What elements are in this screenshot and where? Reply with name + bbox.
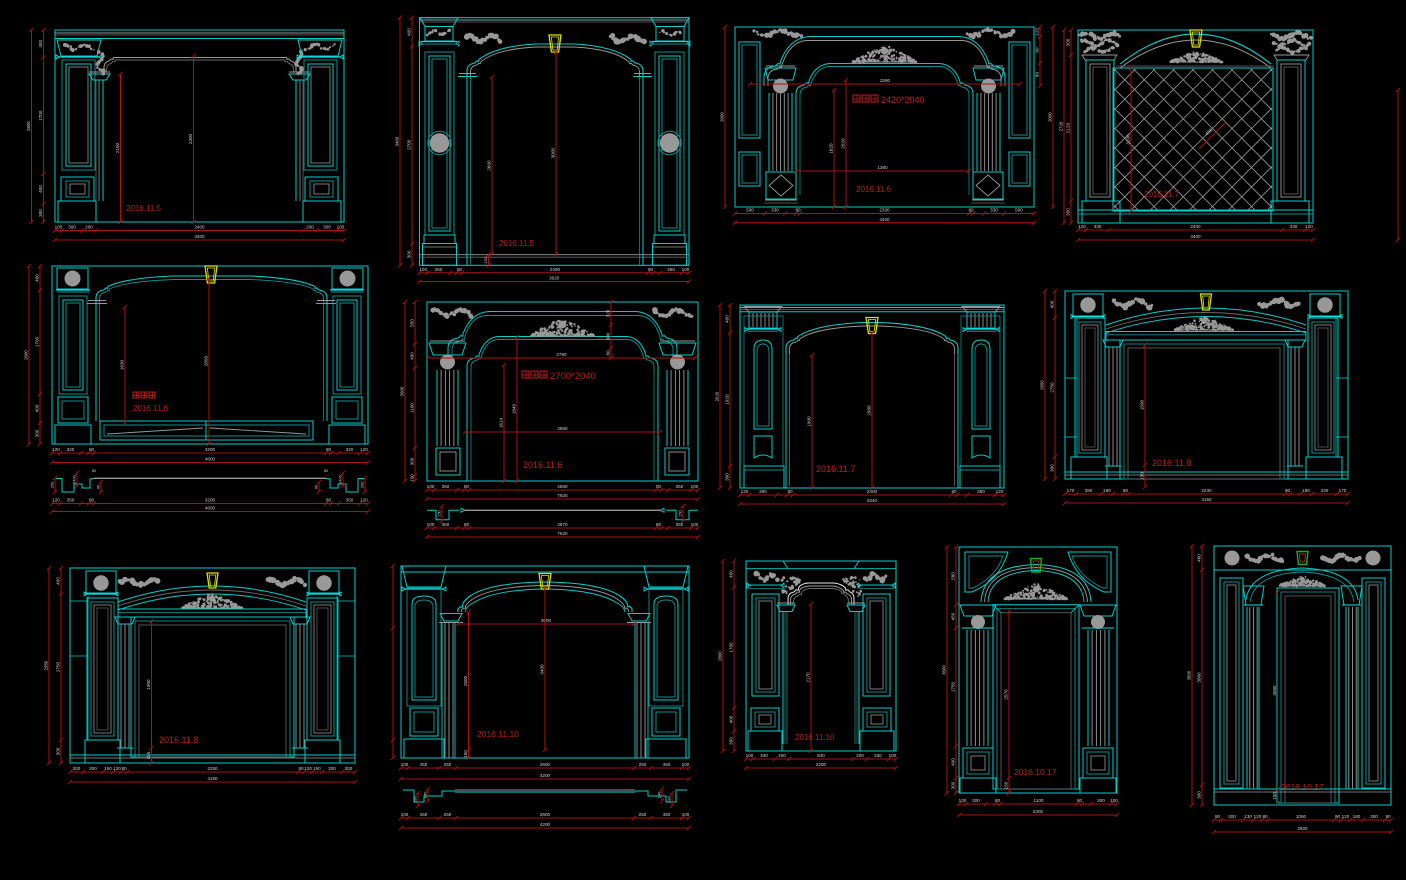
svg-text:150: 150 <box>1004 781 1009 789</box>
svg-text:4300: 4300 <box>194 234 205 239</box>
svg-text:300: 300 <box>56 747 61 755</box>
svg-text:150: 150 <box>104 766 112 771</box>
svg-text:330: 330 <box>990 208 998 213</box>
svg-text:3500: 3500 <box>1187 670 1192 680</box>
svg-text:2750: 2750 <box>1050 382 1055 393</box>
svg-text:120: 120 <box>1254 814 1262 819</box>
svg-text:400: 400 <box>56 577 61 585</box>
svg-text:3500: 3500 <box>942 665 947 675</box>
svg-text:1750: 1750 <box>951 681 956 692</box>
svg-text:80: 80 <box>464 522 470 527</box>
svg-text:80: 80 <box>606 350 611 356</box>
svg-text:4600: 4600 <box>205 506 216 511</box>
svg-text:400: 400 <box>35 274 40 282</box>
svg-text:3600: 3600 <box>541 618 552 623</box>
svg-text:300: 300 <box>1197 791 1202 799</box>
svg-text:80: 80 <box>1262 814 1268 819</box>
svg-text:450: 450 <box>951 612 956 620</box>
svg-text:100: 100 <box>691 484 699 489</box>
svg-text:2016.11.5: 2016.11.5 <box>126 204 162 213</box>
svg-text:2600: 2600 <box>720 112 725 122</box>
svg-text:100: 100 <box>746 753 754 758</box>
svg-text:150: 150 <box>463 750 468 758</box>
svg-text:120: 120 <box>1305 224 1313 229</box>
svg-text:150: 150 <box>483 256 488 263</box>
svg-text:2150: 2150 <box>115 142 120 153</box>
svg-text:120: 120 <box>113 766 121 771</box>
svg-text:3340: 3340 <box>867 498 878 503</box>
svg-text:120: 120 <box>1035 28 1040 36</box>
svg-text:1840: 1840 <box>512 403 517 414</box>
svg-text:1900: 1900 <box>146 679 151 690</box>
svg-text:3360: 3360 <box>880 78 891 83</box>
svg-text:2620: 2620 <box>715 391 720 401</box>
svg-text:1700: 1700 <box>35 336 40 347</box>
svg-text:2016.11.8: 2016.11.8 <box>1152 458 1191 468</box>
svg-text:80: 80 <box>787 489 793 494</box>
svg-text:2400: 2400 <box>867 489 878 494</box>
svg-text:2420*2040: 2420*2040 <box>881 95 925 105</box>
svg-text:2650: 2650 <box>204 355 209 366</box>
svg-text:550: 550 <box>410 319 415 327</box>
svg-text:1100: 1100 <box>410 403 415 413</box>
svg-text:1380: 1380 <box>877 165 888 170</box>
svg-text:460: 460 <box>1197 554 1202 562</box>
svg-text:180: 180 <box>1103 488 1111 493</box>
svg-text:300: 300 <box>38 209 43 217</box>
svg-text:200: 200 <box>50 481 55 488</box>
svg-text:80: 80 <box>968 208 974 213</box>
svg-text:120: 120 <box>52 498 60 503</box>
svg-text:2016.10.17: 2016.10.17 <box>1281 782 1324 792</box>
svg-text:350: 350 <box>676 484 684 489</box>
svg-text:100: 100 <box>401 762 409 767</box>
svg-text:90: 90 <box>1335 814 1341 819</box>
svg-text:2780: 2780 <box>556 352 567 357</box>
svg-text:2400: 2400 <box>73 475 77 483</box>
svg-text:120: 120 <box>1078 224 1086 229</box>
svg-text:120: 120 <box>304 766 312 771</box>
svg-text:1614: 1614 <box>499 417 504 428</box>
svg-text:300: 300 <box>410 457 415 465</box>
svg-text:380: 380 <box>759 489 767 494</box>
svg-text:140: 140 <box>657 791 662 798</box>
svg-text:80: 80 <box>951 489 957 494</box>
svg-text:150: 150 <box>410 474 415 482</box>
svg-text:300: 300 <box>73 766 81 771</box>
svg-text:7620: 7620 <box>557 531 568 536</box>
svg-text:450: 450 <box>420 762 428 767</box>
svg-text:2670: 2670 <box>557 522 568 527</box>
svg-text:350: 350 <box>346 498 354 503</box>
svg-text:3920: 3920 <box>549 276 560 281</box>
svg-text:2400: 2400 <box>188 133 193 144</box>
svg-text:3400: 3400 <box>1190 234 1201 239</box>
svg-text:80: 80 <box>326 498 332 503</box>
svg-text:300: 300 <box>972 798 980 803</box>
svg-text:2700*2040: 2700*2040 <box>550 371 596 382</box>
svg-text:80: 80 <box>326 447 332 452</box>
svg-text:1590: 1590 <box>1140 399 1145 410</box>
svg-text:350: 350 <box>676 522 684 527</box>
svg-text:100: 100 <box>337 225 345 230</box>
svg-text:380: 380 <box>1085 488 1093 493</box>
svg-text:2016.11.6: 2016.11.6 <box>856 185 892 194</box>
svg-text:3060: 3060 <box>1197 672 1202 683</box>
svg-text:150: 150 <box>679 510 683 516</box>
svg-text:350: 350 <box>667 267 675 272</box>
svg-text:4400: 4400 <box>879 217 890 222</box>
svg-text:400: 400 <box>410 352 415 360</box>
svg-text:2490: 2490 <box>550 267 561 272</box>
svg-text:2720: 2720 <box>1059 121 1064 131</box>
svg-text:200: 200 <box>856 753 864 758</box>
svg-text:80: 80 <box>995 798 1001 803</box>
svg-text:3060: 3060 <box>1272 685 1277 696</box>
svg-text:400: 400 <box>729 570 734 578</box>
svg-text:2300: 2300 <box>1033 809 1044 814</box>
svg-text:180: 180 <box>1353 814 1361 819</box>
svg-text:330: 330 <box>1321 488 1329 493</box>
svg-text:120: 120 <box>360 447 368 452</box>
svg-text:320: 320 <box>346 447 354 452</box>
svg-text:1700: 1700 <box>729 642 734 653</box>
svg-text:80: 80 <box>121 766 127 771</box>
svg-text:400: 400 <box>729 715 734 723</box>
svg-text:3400: 3400 <box>540 664 545 675</box>
svg-text:200: 200 <box>778 753 786 758</box>
svg-text:4600: 4600 <box>205 457 216 462</box>
svg-text:2200: 2200 <box>816 762 827 767</box>
svg-text:1620: 1620 <box>829 143 834 154</box>
svg-text:2900: 2900 <box>867 405 872 416</box>
svg-text:400: 400 <box>951 758 956 766</box>
svg-text:100: 100 <box>682 762 690 767</box>
svg-text:300: 300 <box>89 766 97 771</box>
svg-text:580: 580 <box>951 572 956 580</box>
svg-text:2800: 2800 <box>718 651 723 661</box>
svg-text:100: 100 <box>427 522 435 527</box>
svg-text:2016.10.17: 2016.10.17 <box>1014 767 1057 777</box>
svg-text:4200: 4200 <box>540 773 551 778</box>
svg-text:120: 120 <box>996 489 1004 494</box>
svg-text:250: 250 <box>444 812 452 817</box>
svg-text:1920: 1920 <box>725 394 730 405</box>
svg-text:80: 80 <box>464 484 470 489</box>
svg-text:100: 100 <box>691 522 699 527</box>
svg-text:2330: 2330 <box>879 208 890 213</box>
svg-text:2016.11.7: 2016.11.7 <box>1144 190 1180 199</box>
svg-text:400: 400 <box>35 404 40 412</box>
svg-text:80: 80 <box>648 267 654 272</box>
svg-text:2750: 2750 <box>56 661 61 672</box>
svg-text:80: 80 <box>1123 488 1129 493</box>
svg-text:300: 300 <box>729 737 734 745</box>
svg-text:80: 80 <box>656 522 662 527</box>
svg-text:90: 90 <box>1385 814 1391 819</box>
svg-text:300: 300 <box>323 225 331 230</box>
svg-text:3200: 3200 <box>205 498 216 503</box>
svg-text:400: 400 <box>407 28 412 36</box>
svg-text:80: 80 <box>457 267 463 272</box>
svg-text:80: 80 <box>89 498 95 503</box>
svg-text:300: 300 <box>725 473 730 481</box>
svg-text:130: 130 <box>1244 814 1252 819</box>
svg-text:80: 80 <box>89 447 95 452</box>
svg-text:330: 330 <box>771 208 779 213</box>
svg-text:330: 330 <box>760 753 768 758</box>
svg-text:100: 100 <box>419 267 427 272</box>
svg-text:320: 320 <box>67 447 75 452</box>
svg-text:3000: 3000 <box>551 147 556 158</box>
svg-text:1050: 1050 <box>1296 814 1307 819</box>
svg-text:2016.11.10: 2016.11.10 <box>795 733 835 742</box>
svg-text:300: 300 <box>1097 798 1105 803</box>
svg-text:2400: 2400 <box>1190 224 1201 229</box>
svg-text:7920: 7920 <box>557 493 568 498</box>
svg-text:80: 80 <box>298 766 304 771</box>
svg-text:330: 330 <box>1094 224 1102 229</box>
svg-text:80: 80 <box>795 208 801 213</box>
svg-text:120: 120 <box>360 498 368 503</box>
svg-text:100: 100 <box>427 484 435 489</box>
svg-text:80: 80 <box>1285 488 1291 493</box>
svg-text:150: 150 <box>313 766 321 771</box>
svg-text:200: 200 <box>306 225 314 230</box>
svg-text:300: 300 <box>1066 208 1071 216</box>
svg-text:2570: 2570 <box>1004 689 1009 700</box>
svg-text:2400: 2400 <box>194 225 205 230</box>
svg-text:2016.11.6: 2016.11.6 <box>133 404 169 413</box>
svg-text:170: 170 <box>1339 488 1347 493</box>
svg-text:450: 450 <box>663 762 671 767</box>
svg-text:250: 250 <box>444 762 452 767</box>
svg-text:1700: 1700 <box>38 110 43 121</box>
svg-text:2600: 2600 <box>487 160 492 171</box>
svg-text:350: 350 <box>435 267 443 272</box>
svg-text:400: 400 <box>38 40 43 48</box>
svg-text:320: 320 <box>606 309 611 317</box>
svg-text:450: 450 <box>663 812 671 817</box>
svg-text:300: 300 <box>1066 38 1071 46</box>
svg-text:90: 90 <box>97 485 101 489</box>
svg-text:2016.11.10: 2016.11.10 <box>477 729 519 739</box>
svg-text:300: 300 <box>1370 814 1378 819</box>
svg-text:300: 300 <box>345 766 353 771</box>
svg-text:2016.11.6: 2016.11.6 <box>523 460 562 470</box>
svg-text:2600: 2600 <box>463 675 468 686</box>
svg-text:1630: 1630 <box>120 359 125 370</box>
svg-text:380: 380 <box>977 489 985 494</box>
svg-text:100: 100 <box>959 798 967 803</box>
svg-text:4200: 4200 <box>540 822 551 827</box>
svg-text:180: 180 <box>667 795 672 802</box>
svg-text:1100: 1100 <box>1034 798 1044 803</box>
svg-text:300: 300 <box>68 225 76 230</box>
svg-text:2950: 2950 <box>44 660 49 670</box>
svg-text:90: 90 <box>315 485 319 489</box>
svg-text:330: 330 <box>874 753 882 758</box>
svg-text:100: 100 <box>55 225 63 230</box>
svg-text:300: 300 <box>35 429 40 437</box>
svg-text:170: 170 <box>1067 488 1075 493</box>
svg-text:180: 180 <box>1302 488 1310 493</box>
svg-text:2120: 2120 <box>1066 122 1071 133</box>
svg-text:500: 500 <box>746 208 754 213</box>
svg-text:2600: 2600 <box>540 762 551 767</box>
svg-text:3100: 3100 <box>1126 134 1131 145</box>
svg-text:300: 300 <box>1050 464 1055 472</box>
svg-text:300: 300 <box>407 250 412 258</box>
svg-text:2500: 2500 <box>1297 826 1308 831</box>
svg-text:450: 450 <box>420 812 428 817</box>
svg-text:80: 80 <box>1035 47 1040 53</box>
svg-text:150: 150 <box>146 751 151 759</box>
svg-text:120: 120 <box>52 447 60 452</box>
svg-text:80: 80 <box>1077 798 1083 803</box>
svg-text:180: 180 <box>413 795 418 802</box>
svg-text:100: 100 <box>682 267 690 272</box>
svg-text:80: 80 <box>656 484 662 489</box>
svg-text:1900: 1900 <box>807 416 812 427</box>
svg-text:2250: 2250 <box>207 766 218 771</box>
svg-text:2400: 2400 <box>339 475 343 483</box>
svg-text:2660: 2660 <box>557 426 568 431</box>
svg-text:2170: 2170 <box>806 672 811 683</box>
svg-text:150: 150 <box>438 510 442 516</box>
svg-text:120: 120 <box>1342 814 1350 819</box>
svg-text:2020: 2020 <box>841 138 846 149</box>
svg-text:200: 200 <box>85 225 93 230</box>
svg-text:3400: 3400 <box>395 136 400 146</box>
svg-text:100: 100 <box>401 812 409 817</box>
svg-text:300: 300 <box>606 332 611 340</box>
svg-text:2230: 2230 <box>1201 488 1212 493</box>
svg-text:840: 840 <box>817 753 825 758</box>
svg-text:80: 80 <box>1035 72 1040 78</box>
svg-text:2016.11.5: 2016.11.5 <box>499 239 535 248</box>
svg-text:400: 400 <box>725 315 730 323</box>
svg-text:80: 80 <box>92 469 96 473</box>
svg-text:250: 250 <box>639 762 647 767</box>
svg-text:350: 350 <box>442 484 450 489</box>
svg-text:2600: 2600 <box>540 812 551 817</box>
svg-text:100: 100 <box>1110 798 1118 803</box>
svg-text:2016.11.7: 2016.11.7 <box>816 464 855 474</box>
svg-text:2660: 2660 <box>557 484 568 489</box>
svg-text:400: 400 <box>38 185 43 193</box>
svg-text:300: 300 <box>1228 814 1236 819</box>
svg-text:100: 100 <box>889 753 897 758</box>
svg-text:350: 350 <box>67 498 75 503</box>
svg-text:2600: 2600 <box>24 350 29 360</box>
svg-text:100: 100 <box>682 812 690 817</box>
svg-text:300: 300 <box>951 781 956 789</box>
svg-text:2700: 2700 <box>407 139 412 150</box>
svg-text:2650: 2650 <box>1040 380 1045 390</box>
svg-text:2000: 2000 <box>1048 112 1053 122</box>
svg-text:330: 330 <box>1290 224 1298 229</box>
svg-text:500: 500 <box>1015 208 1023 213</box>
svg-text:3200: 3200 <box>205 447 216 452</box>
svg-text:150: 150 <box>1140 472 1145 480</box>
svg-text:80: 80 <box>324 469 328 473</box>
svg-text:350: 350 <box>442 522 450 527</box>
svg-text:400: 400 <box>1050 300 1055 308</box>
svg-text:2016.11.8: 2016.11.8 <box>159 735 198 745</box>
svg-text:2600: 2600 <box>400 386 405 396</box>
svg-text:90: 90 <box>1215 814 1221 819</box>
svg-text:2800: 2800 <box>26 121 31 131</box>
svg-text:140: 140 <box>423 791 428 798</box>
svg-text:200: 200 <box>360 481 365 488</box>
svg-text:120: 120 <box>741 489 749 494</box>
svg-text:4150: 4150 <box>1201 497 1212 502</box>
svg-text:4150: 4150 <box>207 776 218 781</box>
svg-text:300: 300 <box>328 766 336 771</box>
svg-text:150: 150 <box>1272 792 1277 800</box>
svg-text:250: 250 <box>639 812 647 817</box>
